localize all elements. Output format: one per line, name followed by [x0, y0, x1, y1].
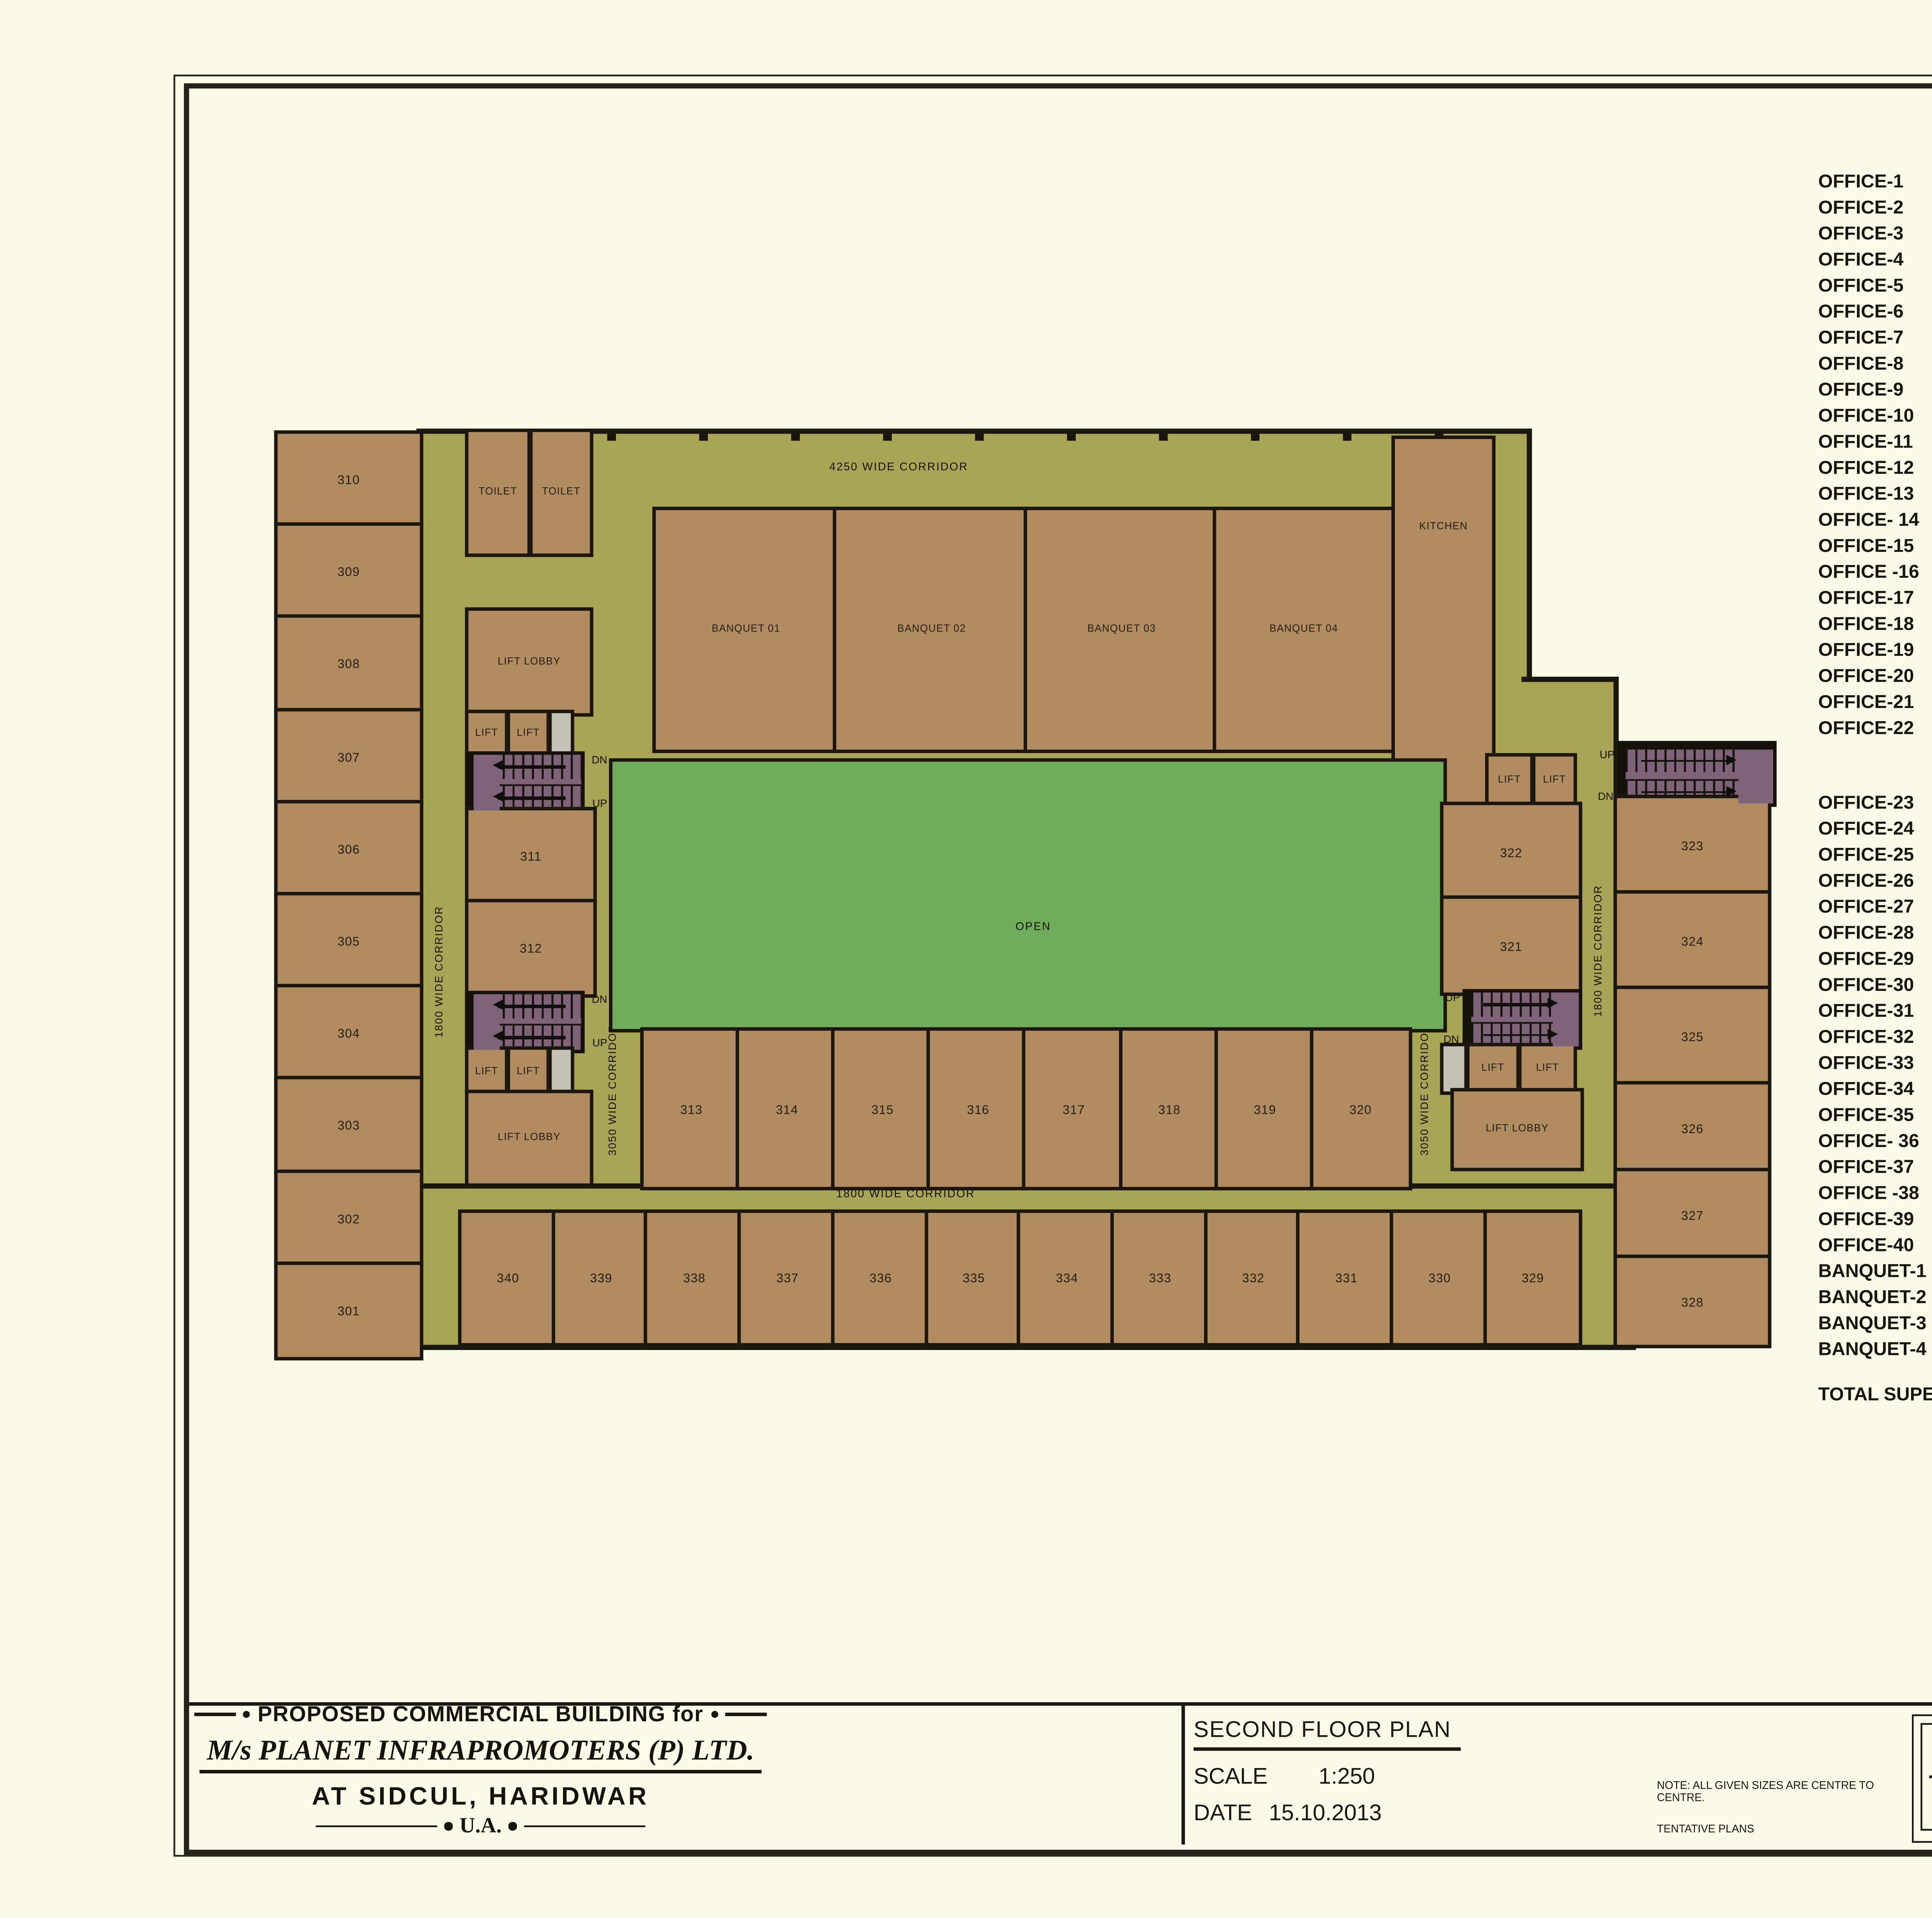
table-row-label: OFFICE-19	[1818, 639, 1932, 665]
room-number: 313	[680, 1101, 703, 1116]
room: 323	[1614, 795, 1772, 897]
table-row-label: OFFICE-15	[1818, 535, 1932, 561]
room-number: 332	[1242, 1270, 1265, 1286]
room-number: 318	[1158, 1101, 1180, 1116]
table-row-label: OFFICE-8	[1818, 352, 1932, 378]
lift-label: LIFT	[1543, 776, 1566, 786]
room-number: 316	[967, 1101, 990, 1116]
table-row-label: OFFICE-13	[1818, 483, 1932, 509]
room-number: 327	[1681, 1207, 1704, 1222]
decorative-dot	[711, 1710, 719, 1719]
company-name: M/s PLANET INFRAPROMOTERS (P) LTD.	[200, 1734, 761, 1773]
note-line-1: NOTE: ALL GIVEN SIZES ARE CENTRE TO CENT…	[1657, 1780, 1917, 1805]
lift-room: LIFT	[507, 1046, 550, 1096]
table-row-label: OFFICE-37	[1818, 1156, 1932, 1182]
scale-label: SCALE	[1194, 1763, 1267, 1789]
room: 315	[832, 1027, 934, 1190]
lift-lobby-label: LIFT LOBBY	[1486, 1125, 1549, 1135]
kitchen-label: KITCHEN	[1419, 522, 1468, 533]
project-caption: PROPOSED COMMERCIAL BUILDING for	[258, 1702, 704, 1727]
room: 317	[1022, 1027, 1125, 1190]
lift-room: LIFT	[1485, 753, 1534, 809]
table-row-label: OFFICE-26	[1818, 870, 1932, 895]
room-number: 304	[338, 1026, 360, 1042]
area-table-2: SIZE SIZE SUPER AREA OFFICE-237.854.9260…	[1818, 765, 1932, 1365]
room-number: 301	[338, 1303, 360, 1318]
room-number: 302	[338, 1211, 360, 1226]
service-shaft	[548, 1046, 574, 1096]
room-number: 338	[683, 1270, 706, 1286]
lift-label: LIFT	[475, 729, 498, 739]
service-shaft	[1440, 1043, 1468, 1095]
table-header-spacer	[1818, 765, 1932, 791]
banquet-label: BANQUET 02	[897, 625, 966, 635]
table-row-label: OFFICE-3	[1818, 222, 1932, 248]
open-label: OPEN	[1015, 921, 1051, 933]
table-row-label: OFFICE-40	[1818, 1234, 1932, 1260]
area-table-1: SIZE SIZE SUPER AREA OFFICE-17.855.03561…	[1818, 144, 1932, 744]
stair-up-label: UP	[592, 798, 607, 810]
room-number: 331	[1335, 1270, 1358, 1286]
room: 303	[274, 1077, 423, 1176]
table-row-label: OFFICE -16	[1818, 561, 1932, 587]
date-label: DATE	[1194, 1799, 1252, 1825]
title-strip-divider-center	[1182, 1702, 1184, 1845]
room-number: 314	[776, 1101, 798, 1116]
stair-dn-label: DN	[1598, 791, 1613, 803]
room-number: 317	[1063, 1101, 1085, 1116]
table-row-label: OFFICE-5	[1818, 274, 1932, 300]
corridor-label-right: 1800 WIDE CORRIDOR	[1589, 838, 1607, 1064]
note-line-2: TENTATIVE PLANS	[1657, 1824, 1917, 1836]
table-row-label: OFFICE-39	[1818, 1208, 1932, 1234]
stair-dn-label: DN	[1444, 1034, 1459, 1046]
toilet-room: TOILET	[465, 429, 531, 557]
room: 318	[1118, 1027, 1221, 1190]
room: 332	[1203, 1210, 1303, 1347]
banquet-hall: BANQUET 04	[1213, 507, 1395, 753]
table-row-label: OFFICE-1	[1818, 170, 1932, 196]
lift-lobby: LIFT LOBBY	[1451, 1088, 1584, 1171]
table-row-label: OFFICE-24	[1818, 817, 1932, 843]
table-row-label: OFFICE-21	[1818, 691, 1932, 717]
decorative-dot	[509, 1822, 517, 1830]
room-number: 319	[1254, 1101, 1276, 1116]
room: 319	[1214, 1027, 1316, 1190]
room: 333	[1110, 1210, 1210, 1347]
open-area: OPEN	[609, 758, 1447, 1032]
lift-room: LIFT	[1466, 1043, 1520, 1095]
corridor-label-top: 4250 WIDE CORRIDOR	[829, 461, 968, 473]
room: 320	[1310, 1027, 1412, 1190]
room: 326	[1614, 1081, 1772, 1174]
room-number: 333	[1149, 1270, 1172, 1286]
decorative-rule	[316, 1825, 437, 1828]
table-row-label: BANQUET-2	[1818, 1286, 1932, 1312]
staircase: DN UP	[465, 991, 585, 1053]
stair-up-label: UP	[1445, 992, 1460, 1004]
scale-value: 1:250	[1318, 1763, 1375, 1789]
room: 337	[738, 1210, 838, 1347]
decorative-dot	[243, 1710, 251, 1719]
banquet-hall: BANQUET 03	[1024, 507, 1219, 753]
table-row-label: BANQUET-3	[1818, 1312, 1932, 1338]
room: 338	[645, 1210, 745, 1347]
room: 335	[924, 1210, 1024, 1347]
stair-dn-label: DN	[592, 994, 607, 1006]
drawing-sheet: 4250 WIDE CORRIDOR 1800 WIDE CORRIDOR 18…	[0, 0, 1932, 1917]
room: 328	[1614, 1254, 1772, 1348]
plan-title: SECOND FLOOR PLAN	[1194, 1716, 1461, 1751]
staircase: DN UP	[465, 751, 585, 814]
area-table-total: TOTAL SUPER AREA 3230.477 34772.501	[1818, 1383, 1932, 1409]
table-row-label: OFFICE-31	[1818, 1000, 1932, 1026]
table-row-label: OFFICE- 14	[1818, 509, 1932, 535]
room-number: 309	[338, 565, 360, 580]
stair-dn-label: DN	[592, 755, 607, 767]
room: 309	[274, 522, 423, 622]
room: 314	[736, 1027, 838, 1190]
floor-plan: 4250 WIDE CORRIDOR 1800 WIDE CORRIDOR 18…	[0, 0, 1932, 1917]
stair-up-label: UP	[592, 1038, 607, 1050]
decorative-rule	[725, 1713, 767, 1716]
state-label: U.A.	[459, 1813, 502, 1839]
table-header-spacer	[1818, 144, 1932, 170]
toilet-label: TOILET	[542, 488, 580, 498]
room-number: 306	[338, 841, 360, 857]
lift-label: LIFT	[517, 1066, 540, 1077]
room-number: 329	[1522, 1270, 1544, 1286]
table-row-label: OFFICE- 36	[1818, 1130, 1932, 1156]
date-value: 15.10.2013	[1269, 1799, 1382, 1825]
room-number: 311	[520, 849, 541, 864]
room: 301	[274, 1261, 423, 1360]
lift-label: LIFT	[475, 1066, 498, 1077]
staircase: UP DN	[1463, 989, 1582, 1050]
room: 316	[927, 1027, 1029, 1190]
room: 327	[1614, 1168, 1772, 1261]
corridor-label-bottom: 1800 WIDE CORRIDOR	[836, 1189, 975, 1201]
room: 302	[274, 1169, 423, 1268]
room: 336	[831, 1210, 931, 1347]
room-number: 336	[869, 1270, 892, 1286]
lift-lobby: LIFT LOBBY	[465, 607, 593, 716]
table-row-label: OFFICE-20	[1818, 665, 1932, 691]
title-block-center: SECOND FLOOR PLAN SCALE 1:250 DATE 15.10…	[1194, 1714, 1506, 1843]
room: 330	[1389, 1210, 1490, 1347]
room-number: 326	[1681, 1120, 1704, 1135]
notes-block: NOTE: ALL GIVEN SIZES ARE CENTRE TO CENT…	[1657, 1780, 1917, 1836]
table-row-label: OFFICE-11	[1818, 431, 1932, 456]
room-number: 340	[497, 1270, 519, 1286]
table-row-label: OFFICE-6	[1818, 300, 1932, 326]
room-number: 330	[1429, 1270, 1451, 1286]
room-number: 308	[338, 657, 360, 672]
room: 306	[274, 800, 423, 899]
room: 312	[465, 899, 597, 998]
room: 339	[551, 1210, 651, 1347]
lift-lobby-label: LIFT LOBBY	[498, 657, 561, 667]
room: 331	[1296, 1210, 1396, 1347]
lift-label: LIFT	[1536, 1064, 1559, 1074]
room-number: 310	[338, 472, 360, 488]
lift-lobby-label: LIFT LOBBY	[498, 1133, 561, 1144]
room-number: 320	[1349, 1101, 1372, 1116]
room-number: 325	[1681, 1029, 1704, 1045]
lift-label: LIFT	[1498, 776, 1521, 786]
room: 307	[274, 707, 423, 807]
room-number: 321	[1500, 938, 1522, 953]
room-number: 312	[520, 941, 542, 956]
table-row-label: OFFICE-32	[1818, 1026, 1932, 1052]
table-row-label: OFFICE-22	[1818, 717, 1932, 743]
room: 313	[640, 1027, 743, 1190]
banquet-label: BANQUET 01	[712, 625, 781, 635]
room: 325	[1614, 985, 1772, 1088]
table-row-label: OFFICE-18	[1818, 613, 1932, 639]
room: 329	[1483, 1210, 1583, 1347]
table-row-label: OFFICE -38	[1818, 1182, 1932, 1208]
banquet-hall: BANQUET 02	[833, 507, 1031, 753]
decorative-dot	[445, 1822, 453, 1830]
room-number: 335	[963, 1270, 985, 1286]
room-number: 337	[776, 1270, 799, 1286]
table-row-label: OFFICE-29	[1818, 948, 1932, 973]
room-number: 323	[1681, 838, 1704, 854]
table-row-label: OFFICE-2	[1818, 196, 1932, 222]
banquet-label: BANQUET 03	[1087, 625, 1156, 635]
table-row-label: OFFICE-4	[1818, 248, 1932, 274]
room: 310	[274, 431, 423, 530]
room: 321	[1440, 895, 1582, 996]
room: 340	[458, 1210, 558, 1347]
table-row-label: OFFICE-10	[1818, 405, 1932, 431]
room-number: 315	[871, 1101, 894, 1116]
logo-box	[1920, 1723, 1932, 1831]
project-location: AT SIDCUL, HARIDWAR	[312, 1784, 649, 1812]
room-number: 305	[338, 934, 360, 949]
title-block-left: PROPOSED COMMERCIAL BUILDING for M/s PLA…	[194, 1692, 767, 1841]
compass-logo-icon	[1922, 1725, 1932, 1829]
room: 322	[1440, 802, 1582, 902]
table-row-label: BANQUET-1	[1818, 1260, 1932, 1286]
table-row-label: OFFICE-35	[1818, 1104, 1932, 1130]
banquet-hall: BANQUET 01	[652, 507, 840, 753]
room-number: 339	[590, 1270, 612, 1286]
room-number: 328	[1681, 1293, 1704, 1309]
room: 324	[1614, 890, 1772, 992]
room-number: 307	[338, 749, 360, 764]
banquet-label: BANQUET 04	[1269, 625, 1338, 635]
decorative-rule	[524, 1825, 645, 1828]
table-row-label: OFFICE-25	[1818, 843, 1932, 869]
table-row-label: OFFICE-17	[1818, 587, 1932, 613]
table-row-label: OFFICE-12	[1818, 457, 1932, 483]
toilet-label: TOILET	[478, 488, 517, 498]
table-row-label: OFFICE-7	[1818, 327, 1932, 352]
lift-room: LIFT	[1532, 753, 1577, 809]
lift-label: LIFT	[1481, 1064, 1505, 1074]
toilet-room: TOILET	[529, 429, 593, 557]
lift-room: LIFT	[1518, 1043, 1577, 1095]
decorative-rule	[194, 1713, 236, 1716]
lift-room: LIFT	[465, 1046, 508, 1096]
table-row-label: BANQUET-4	[1818, 1338, 1932, 1364]
table-row-label: OFFICE-28	[1818, 922, 1932, 948]
room-number: 322	[1500, 844, 1522, 859]
room: 311	[465, 807, 597, 906]
lift-label: LIFT	[517, 729, 540, 739]
stair-up-label: UP	[1600, 750, 1615, 762]
room: 305	[274, 892, 423, 991]
table-row-label: OFFICE-30	[1818, 973, 1932, 999]
corridor-label-left: 1800 WIDE CORRIDOR	[430, 859, 448, 1085]
total-label: TOTAL SUPER AREA	[1818, 1383, 1932, 1409]
table-row-label: OFFICE-23	[1818, 791, 1932, 817]
room-number: 324	[1681, 934, 1704, 949]
room-number: 303	[338, 1118, 360, 1134]
table-row-label: OFFICE-34	[1818, 1078, 1932, 1104]
room: 308	[274, 615, 423, 714]
table-row-label: OFFICE-33	[1818, 1052, 1932, 1078]
room: 304	[274, 984, 423, 1084]
table-row-label: OFFICE-27	[1818, 895, 1932, 921]
title-block-right: ARCHITECTS ANDLEYS ASSOCIATES (P) LTD. A…	[1912, 1714, 1932, 1843]
room-number: 334	[1056, 1270, 1078, 1286]
room: 334	[1017, 1210, 1117, 1347]
table-row-label: OFFICE-9	[1818, 378, 1932, 404]
column-ticks	[607, 434, 1518, 441]
lift-lobby: LIFT LOBBY	[465, 1090, 593, 1187]
